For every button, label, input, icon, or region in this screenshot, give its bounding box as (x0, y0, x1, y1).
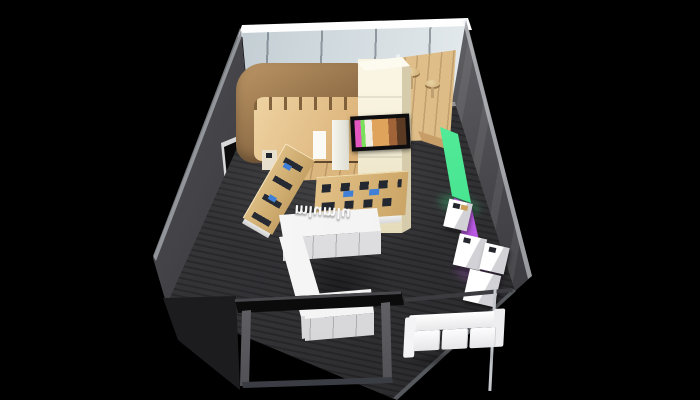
column-seam (358, 96, 402, 98)
column-seam (358, 156, 402, 158)
tv-screen-content (354, 118, 406, 148)
sofa-cushion (441, 328, 468, 349)
accessory-box (460, 205, 468, 211)
device-screen (453, 203, 461, 209)
sofa (402, 300, 509, 372)
tv-screen (350, 113, 411, 151)
sofa-cushion (413, 330, 440, 351)
device-screen (266, 153, 272, 158)
sofa-shadow (402, 348, 507, 370)
stool-stem (431, 87, 434, 98)
device-screen (343, 191, 353, 198)
sofa-cushion (469, 327, 496, 348)
store-render: mlumlu (0, 0, 700, 400)
device-screen (488, 247, 496, 253)
interior-white-stand (313, 131, 326, 159)
device-screen (369, 189, 379, 196)
device-screen (463, 237, 471, 243)
interior-white-pillar (332, 120, 349, 170)
stool (425, 80, 440, 87)
